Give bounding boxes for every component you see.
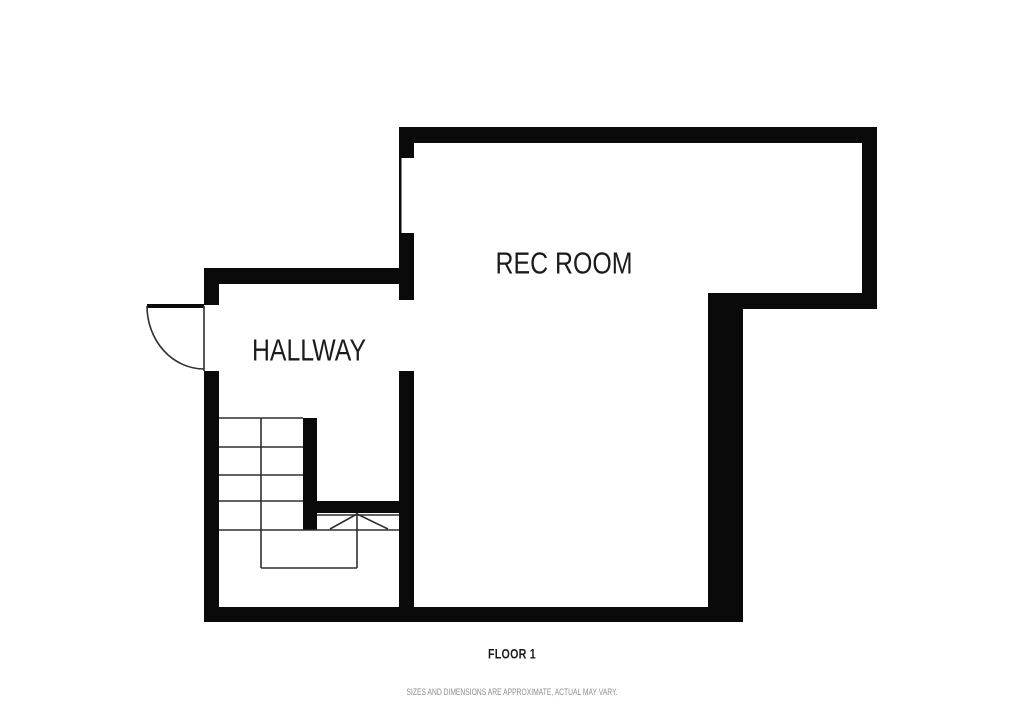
wall-recroom-left-top: [399, 127, 414, 158]
stair-arrow-left: [330, 514, 357, 529]
walls: [147, 127, 877, 622]
wall-bottom: [204, 607, 743, 622]
stair-arrow-right: [357, 514, 388, 529]
floor-number-label: FLOOR 1: [488, 647, 536, 662]
door-swing-arc: [147, 306, 204, 369]
wall-left-below-door: [204, 371, 219, 622]
hallway-label: HALLWAY: [252, 333, 366, 368]
wall-right-upper: [862, 127, 877, 309]
door-panel: [147, 304, 204, 308]
floor-plan-page: REC ROOM HALLWAY FLOOR 1 SIZES AND DIMEN…: [0, 0, 1024, 723]
wall-recroom-left-bottom: [399, 371, 414, 622]
floor-plan-drawing: REC ROOM HALLWAY FLOOR 1 SIZES AND DIMEN…: [0, 0, 1024, 723]
wall-stair-newel: [303, 418, 317, 530]
wall-right-lower: [708, 293, 743, 622]
wall-opening-thin-line: [399, 158, 402, 233]
wall-top: [399, 127, 877, 143]
wall-left-above-door: [204, 268, 219, 305]
wall-hallway-top: [204, 268, 399, 284]
wall-stair-side: [317, 501, 399, 513]
disclaimer-text: SIZES AND DIMENSIONS ARE APPROXIMATE, AC…: [407, 687, 618, 697]
rec-room-label: REC ROOM: [496, 246, 633, 281]
wall-recroom-left-mid: [399, 233, 414, 300]
